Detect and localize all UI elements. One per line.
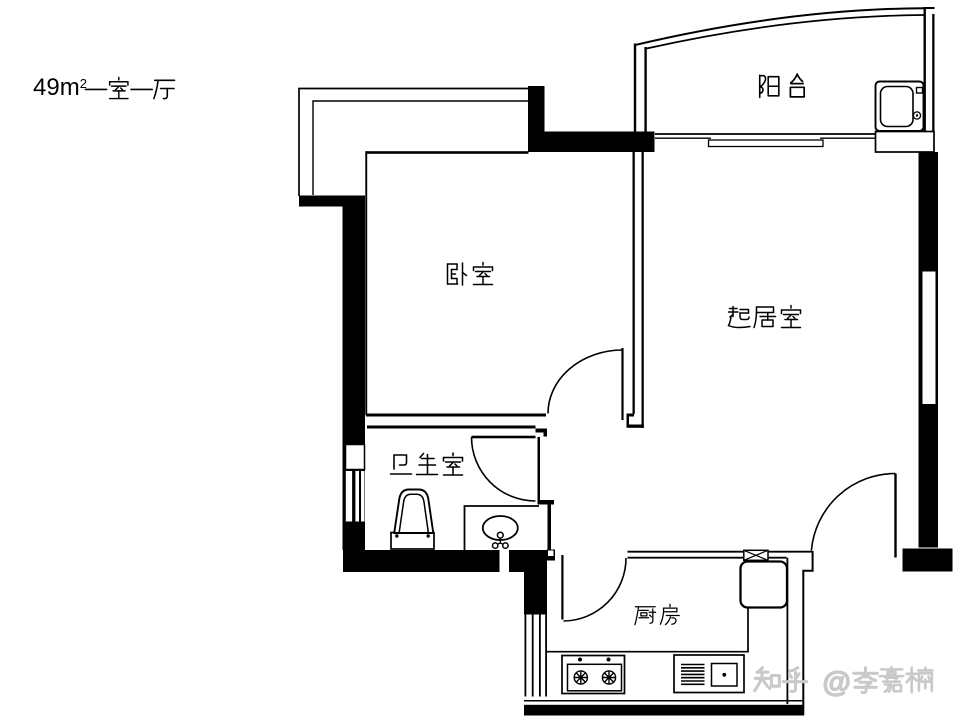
svg-text:@: @ <box>823 667 851 699</box>
svg-text:49m2: 49m2 <box>33 74 87 101</box>
